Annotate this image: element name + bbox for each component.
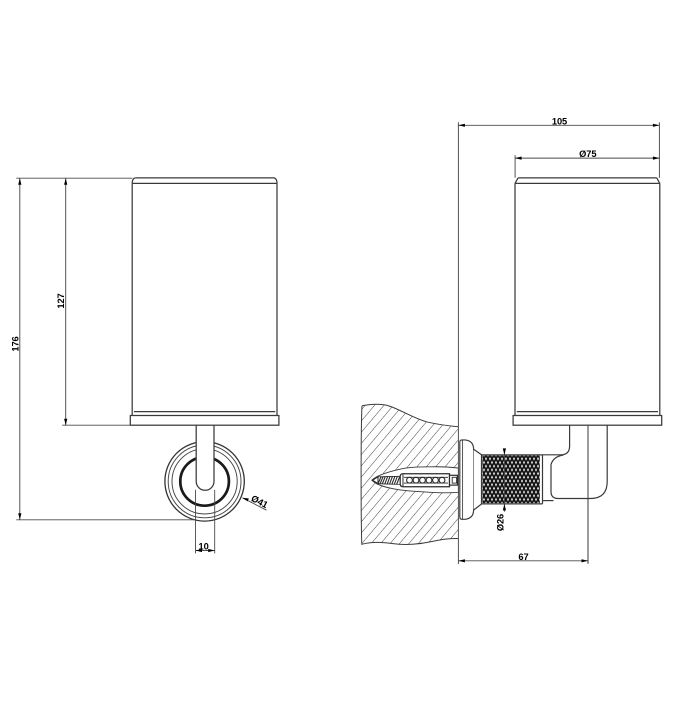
svg-text:10: 10 <box>199 542 209 552</box>
svg-text:105: 105 <box>552 116 567 126</box>
svg-text:Ø75: Ø75 <box>579 149 596 159</box>
svg-text:Ø41: Ø41 <box>250 493 270 510</box>
svg-text:127: 127 <box>56 293 66 308</box>
svg-text:Ø26: Ø26 <box>496 514 506 531</box>
svg-text:176: 176 <box>10 336 20 351</box>
svg-text:67: 67 <box>518 552 528 562</box>
